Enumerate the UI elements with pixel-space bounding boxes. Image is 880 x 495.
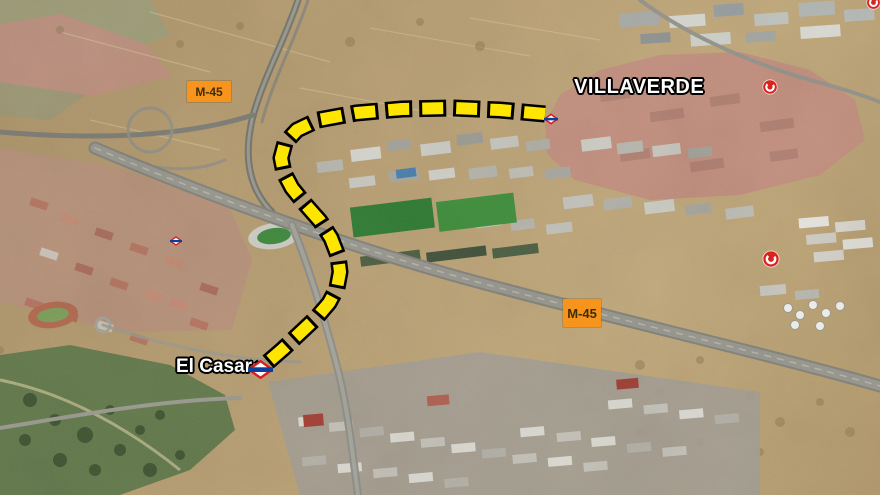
m45-road-badge: M-45: [563, 299, 601, 327]
m45-road-badge: M-45: [187, 81, 231, 102]
route-dashed-line: [259, 108, 545, 369]
aerial-map: VILLAVERDE El Casar M-45 M-45: [0, 0, 880, 495]
route-layer: [0, 0, 880, 495]
el-casar-label: El Casar: [176, 356, 252, 378]
villaverde-label: VILLAVERDE: [574, 76, 704, 99]
